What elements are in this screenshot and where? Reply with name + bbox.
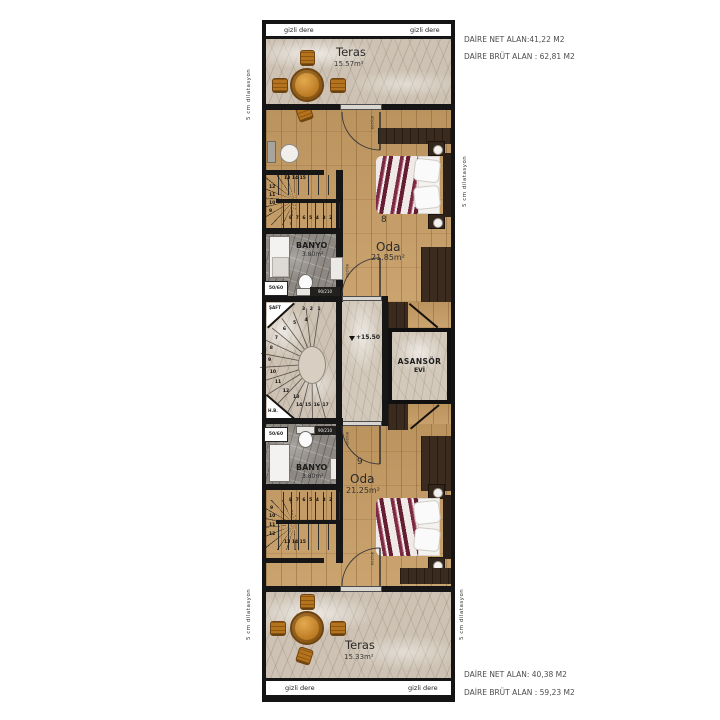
sliding-door-threshold <box>340 586 382 592</box>
stair-step-number: 12 <box>269 186 275 191</box>
spiral-step-number: 11 <box>275 381 281 386</box>
wall <box>262 484 343 490</box>
top-unit-net-area: DAİRE NET ALAN:41,22 M2 <box>464 36 564 44</box>
spiral-landing <box>298 346 326 384</box>
chair-icon <box>300 594 315 610</box>
round-table-icon <box>290 68 324 102</box>
level-marker-icon <box>349 336 355 341</box>
door-size-label: 80/205 <box>345 264 349 277</box>
level-marker-value: +15.50 <box>356 335 380 341</box>
shaft-label: ŞAFT <box>269 306 281 310</box>
bathroom-top-name: BANYO <box>296 242 327 250</box>
stair-step-number: 10 <box>269 515 275 520</box>
bedroom8-wardrobe <box>421 247 451 302</box>
side-table-icon <box>280 144 299 163</box>
stair-step-number: 12 <box>269 533 275 538</box>
door-size-label: 90/210 <box>318 428 332 433</box>
bed-blanket <box>376 156 420 214</box>
wall <box>262 678 455 681</box>
bathroom-top-area: 3.80m² <box>302 252 324 258</box>
room8-name: Oda <box>376 241 400 253</box>
headboard <box>443 153 451 217</box>
spiral-row-top: 3 2 1 <box>302 308 321 313</box>
stairs-top-row-upper: 13 14 15 <box>284 177 306 182</box>
bathroom-bottom-window: 50/60 <box>264 427 288 442</box>
gizli-dere-bottom-left: gizli dere <box>285 685 315 692</box>
bathroom-top-door-strip: 90/210 <box>310 287 340 296</box>
wall <box>262 37 455 39</box>
stair-step-number: 11 <box>269 524 275 529</box>
bottom-unit-gross-area: DAİRE BRÜT ALAN : 59,23 M2 <box>464 689 575 697</box>
room8-number: 8 <box>381 216 387 225</box>
bottom-unit-net-area: DAİRE NET ALAN: 40,38 M2 <box>464 671 567 679</box>
bed-icon <box>376 498 446 556</box>
stairs-bottom-row-upper: 8 7 6 5 4 3 2 <box>289 499 332 504</box>
stairs-bottom-row-lower: 13 14 15 <box>284 541 306 546</box>
radiator-icon <box>267 141 276 163</box>
door-size-label: 80/205 <box>345 432 349 445</box>
dilatation-label-left-top: 5 cm dilatasyon <box>247 58 253 120</box>
chair-icon <box>330 621 346 636</box>
stair-step-number: 9 <box>269 210 272 215</box>
terrace-bottom-name: Teras <box>345 640 375 652</box>
dilatation-label-right-top: 5 cm dilatasyon <box>463 145 469 207</box>
gizli-dere-bottom-right: gizli dere <box>408 685 438 692</box>
bathroom-bottom-name: BANYO <box>296 464 327 472</box>
headboard <box>443 495 451 559</box>
gizli-dere-top-left: gizli dere <box>284 27 314 34</box>
top-unit-gross-area: DAİRE BRÜT ALAN : 62,81 M2 <box>464 53 575 61</box>
shower-icon <box>269 444 290 482</box>
bed-icon <box>376 156 446 214</box>
round-table-icon <box>290 611 324 645</box>
shower-tray <box>272 257 289 277</box>
wall <box>336 296 342 426</box>
spiral-step-number: 12 <box>283 390 289 395</box>
window-size-label: 50/60 <box>269 286 283 291</box>
sliding-door-threshold <box>340 104 382 110</box>
stairs-top-row-lower: 8 7 6 5 4 3 2 <box>289 217 332 222</box>
door-size-label: 80/205 <box>370 116 374 129</box>
halfbath-label: H.B. <box>268 409 278 413</box>
corridor-threshold-top <box>342 296 382 301</box>
stair-step-number: 11 <box>269 194 275 199</box>
spiral-step-number: 8 <box>270 347 273 352</box>
gizli-dere-top-right: gizli dere <box>410 27 440 34</box>
door-size-label: 80/205 <box>370 552 374 565</box>
bedroom9-wardrobe-strip <box>400 568 451 584</box>
spiral-step-number: 7 <box>275 337 278 342</box>
closet-top <box>388 302 408 328</box>
wall <box>262 558 324 563</box>
corridor-floor <box>342 296 382 426</box>
spiral-step-number: 13 <box>293 396 299 401</box>
pillow-icon <box>413 158 442 184</box>
pillow-icon <box>413 185 441 211</box>
spiral-step-number: 5 <box>293 322 296 327</box>
chair-icon <box>272 78 288 93</box>
shower-icon <box>269 236 290 278</box>
room9-area: 21.25m² <box>346 487 380 495</box>
stair-step-number: 9 <box>270 507 273 512</box>
terrace-top-name: Teras <box>336 47 366 59</box>
spiral-step-number: 6 <box>283 328 286 333</box>
pillow-icon <box>413 500 442 526</box>
chair-icon <box>270 621 286 636</box>
dilatation-label-right-bottom: 5 cm dilatasyon <box>460 578 466 640</box>
window-size-label: 50/60 <box>269 432 283 437</box>
dilatation-label-left-bottom: 5 cm dilatasyon <box>247 578 253 640</box>
stair-step-number: 10 <box>269 202 275 207</box>
chair-icon <box>300 50 315 66</box>
closet-bottom <box>388 404 408 430</box>
chair-icon <box>330 78 346 93</box>
room9-name: Oda <box>350 473 374 485</box>
terrace-top-area: 15.57m² <box>334 61 364 68</box>
spiral-step-number: 9 <box>268 359 271 364</box>
terrace-bottom-area: 15.33m² <box>344 654 374 661</box>
elevator-label: ASANSÖR <box>398 358 442 366</box>
spiral-row-bottom: 14 15 16 17 <box>296 404 329 409</box>
elevator-room: ASANSÖR EVİ <box>388 328 451 404</box>
bathroom-top-window: 50/60 <box>264 281 288 296</box>
pillow-icon <box>413 527 441 553</box>
door-size-label: 90/210 <box>318 289 332 294</box>
bathroom-bottom-area: 3.80m² <box>302 474 324 480</box>
elevator-label-2: EVİ <box>414 368 425 374</box>
toilet-bowl <box>298 431 313 448</box>
toilet-icon <box>297 426 313 446</box>
bedroom9-wardrobe <box>421 436 451 491</box>
spiral-step-number: 10 <box>270 371 276 376</box>
spiral-step-number: 4 <box>305 319 308 324</box>
